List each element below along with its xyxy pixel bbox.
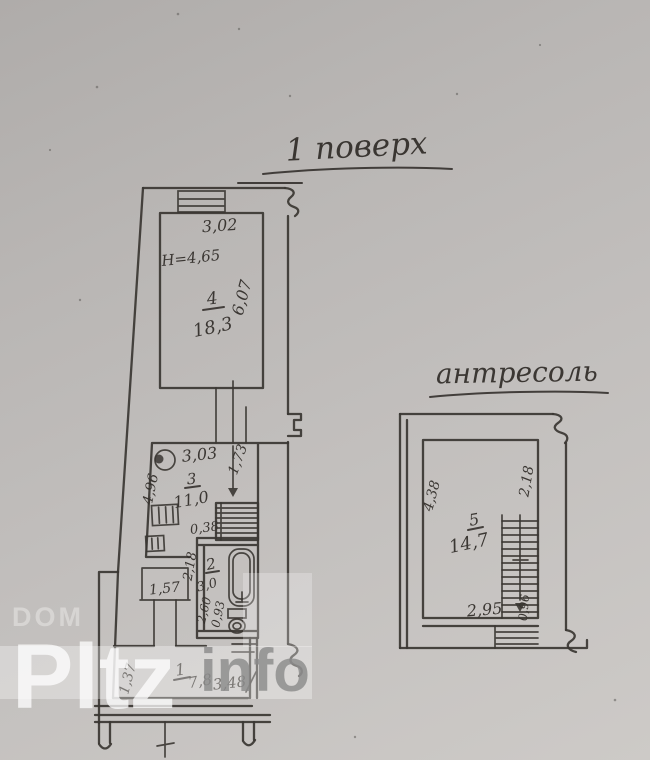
mezzanine-title-underline bbox=[430, 392, 608, 397]
mezzanine-stairs-symbol bbox=[495, 515, 538, 648]
mezzanine-title: антресоль bbox=[436, 355, 598, 391]
room3-side-label: 4,96 bbox=[140, 472, 162, 507]
scanned-floor-plan-page: 1 поверх 3,02 H=4,65 4 18,3 6,07 bbox=[0, 0, 650, 760]
room4-area-label: 18,3 bbox=[191, 313, 235, 342]
room5-width-label: 2,95 bbox=[465, 599, 503, 621]
break-symbol-stub-right bbox=[243, 740, 255, 745]
stove-icon bbox=[155, 450, 176, 470]
room4-depth-label: 6,07 bbox=[228, 277, 256, 317]
watermark-main-text: Pltz bbox=[12, 626, 176, 728]
break-symbol-top-right bbox=[285, 188, 298, 216]
break-symbol-top bbox=[553, 414, 567, 443]
stairs-lower-treads bbox=[495, 626, 538, 648]
room3-stair-dim-label: 1,73 bbox=[225, 442, 251, 477]
room4-height-label: H=4,65 bbox=[160, 246, 222, 270]
room4-number-label: 4 bbox=[205, 288, 219, 309]
floor-plan-drawing: 1 поверх 3,02 H=4,65 4 18,3 6,07 bbox=[0, 0, 650, 760]
room5: 5 14,7 4,38 2,18 2,95 0,96 bbox=[420, 440, 538, 648]
mezzanine-plan: антресоль 5 14,7 4,38 2,18 bbox=[400, 355, 608, 652]
first-floor-title: 1 поверх bbox=[285, 125, 429, 168]
door-passage bbox=[216, 381, 246, 443]
wall-notch bbox=[288, 414, 301, 436]
room5-area-label: 14,7 bbox=[447, 529, 491, 558]
radiator-icon-2 bbox=[146, 536, 165, 552]
room3-dim-b-label: 1,57 bbox=[148, 579, 181, 598]
title-underline bbox=[263, 168, 452, 174]
window-symbol bbox=[178, 191, 225, 212]
room4: 3,02 H=4,65 4 18,3 6,07 bbox=[160, 213, 263, 388]
room5-side-right-label: 2,18 bbox=[516, 464, 537, 499]
room5-stair-dim-label: 0,96 bbox=[516, 593, 532, 621]
room2-area-label: 3,0 bbox=[195, 576, 219, 596]
watermark-suffix-text: info bbox=[200, 637, 310, 704]
break-symbol-stub-left bbox=[99, 744, 111, 749]
watermark-band-upper bbox=[243, 573, 312, 647]
room3-number-label: 3 bbox=[186, 470, 197, 489]
room4-width-label: 3,02 bbox=[201, 215, 238, 236]
room5-number-label: 5 bbox=[467, 509, 480, 529]
room3-width-label: 3,03 bbox=[181, 443, 218, 466]
